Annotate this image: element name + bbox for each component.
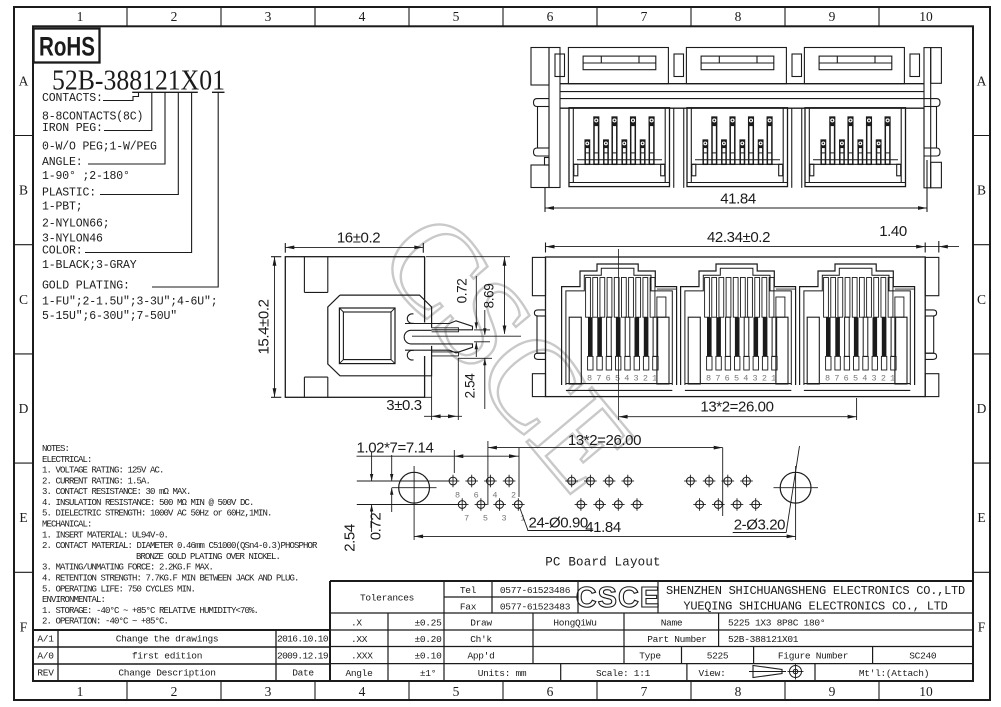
svg-text:2016.10.10: 2016.10.10 — [277, 634, 329, 645]
svg-text:6: 6 — [547, 9, 554, 24]
svg-text:2: 2 — [643, 374, 648, 384]
svg-text:RoHS: RoHS — [39, 32, 95, 62]
svg-text:D: D — [977, 401, 987, 416]
svg-text:A/1: A/1 — [37, 634, 54, 645]
svg-text:4: 4 — [862, 374, 867, 384]
svg-text:COLOR:: COLOR: — [42, 245, 83, 258]
svg-text:2-Ø3.20: 2-Ø3.20 — [734, 517, 785, 534]
svg-text:3. CONTACT RESISTANCE: 30 mΩ M: 3. CONTACT RESISTANCE: 30 mΩ MAX. — [42, 487, 191, 497]
svg-text:8.69: 8.69 — [482, 284, 497, 309]
svg-text:6: 6 — [844, 374, 849, 384]
svg-text:6: 6 — [606, 374, 611, 384]
svg-text:A/0: A/0 — [37, 651, 54, 662]
svg-text:B: B — [977, 183, 986, 198]
svg-text:Mt'l:(Attach): Mt'l:(Attach) — [859, 668, 929, 679]
svg-text:Figure Number: Figure Number — [778, 651, 848, 662]
svg-text:42.34±0.2: 42.34±0.2 — [707, 229, 770, 246]
svg-text:41.84: 41.84 — [720, 191, 756, 208]
svg-text:15.4±0.2: 15.4±0.2 — [256, 299, 273, 354]
svg-text:4. INSULATION RESISTANCE: 500: 4. INSULATION RESISTANCE: 500 MΩ MIN @ 5… — [42, 498, 254, 508]
svg-text:2-NYLON66;: 2-NYLON66; — [42, 218, 110, 231]
svg-text:.XXX: .XXX — [351, 651, 373, 662]
svg-text:±0.20: ±0.20 — [414, 634, 442, 645]
svg-text:1: 1 — [77, 684, 84, 699]
svg-text:0-W/O PEG;1-W/PEG: 0-W/O PEG;1-W/PEG — [42, 141, 157, 154]
svg-text:B: B — [19, 183, 28, 198]
svg-text:5. DIELECTRIC STRENGTH: 1000V: 5. DIELECTRIC STRENGTH: 1000V AC 50Hz or… — [42, 509, 272, 519]
svg-text:9: 9 — [829, 9, 836, 24]
svg-text:7: 7 — [715, 374, 720, 384]
svg-text:D: D — [19, 401, 29, 416]
svg-text:C: C — [19, 292, 28, 307]
svg-text:Angle: Angle — [345, 668, 373, 679]
svg-text:2.54: 2.54 — [342, 524, 359, 552]
svg-text:MECHANICAL:: MECHANICAL: — [42, 520, 92, 530]
svg-text:2: 2 — [511, 491, 516, 501]
svg-text:Change Description: Change Description — [118, 668, 215, 679]
svg-text:5. OPERATING LIFE: 750 CYCLES: 5. OPERATING LIFE: 750 CYCLES MIN. — [42, 585, 195, 595]
svg-text:3±0.3: 3±0.3 — [386, 397, 421, 414]
svg-text:first edition: first edition — [132, 651, 202, 662]
svg-text:CONTACTS:: CONTACTS: — [42, 92, 103, 105]
svg-text:1: 1 — [771, 374, 776, 384]
svg-text:5: 5 — [453, 9, 460, 24]
svg-text:6: 6 — [725, 374, 730, 384]
svg-text:16±0.2: 16±0.2 — [337, 230, 380, 247]
svg-text:Ch'k: Ch'k — [470, 634, 492, 645]
svg-text:7: 7 — [641, 684, 648, 699]
svg-text:2: 2 — [171, 9, 178, 24]
svg-text:8: 8 — [455, 491, 460, 501]
svg-text:Units: mm: Units: mm — [478, 668, 527, 679]
svg-text:7: 7 — [834, 374, 839, 384]
svg-text:8: 8 — [735, 684, 742, 699]
svg-text:4: 4 — [624, 374, 629, 384]
svg-text:5225: 5225 — [707, 651, 729, 662]
svg-text:2.54: 2.54 — [463, 373, 478, 399]
svg-text:1. INSERT MATERIAL: UL94V-0.: 1. INSERT MATERIAL: UL94V-0. — [42, 531, 168, 541]
svg-text:Change the drawings: Change the drawings — [116, 634, 219, 645]
svg-text:E: E — [19, 510, 27, 525]
svg-text:1-BLACK;3-GRAY: 1-BLACK;3-GRAY — [42, 259, 137, 272]
svg-text:8: 8 — [735, 9, 742, 24]
svg-text:52B-388121X01: 52B-388121X01 — [728, 634, 799, 645]
svg-text:2: 2 — [881, 374, 886, 384]
svg-text:±1°: ±1° — [420, 668, 436, 679]
svg-text:3: 3 — [872, 374, 877, 384]
svg-text:0.72: 0.72 — [368, 513, 385, 541]
svg-text:SC240: SC240 — [909, 651, 937, 662]
svg-text:NOTES:: NOTES: — [42, 444, 69, 454]
svg-text:.XX: .XX — [351, 634, 368, 645]
svg-text:1: 1 — [652, 374, 657, 384]
svg-text:4: 4 — [492, 491, 497, 501]
svg-text:BRONZE GOLD PLATING OVER NICKE: BRONZE GOLD PLATING OVER NICKEL. — [136, 552, 280, 562]
svg-text:View:: View: — [698, 668, 725, 679]
svg-text:2. CONTACT MATERIAL: DIAMETER: 2. CONTACT MATERIAL: DIAMETER 0.46mm C51… — [42, 541, 318, 551]
svg-text:3: 3 — [753, 374, 758, 384]
svg-text:1: 1 — [890, 374, 895, 384]
svg-text:2. CURRENT RATING: 1.5A.: 2. CURRENT RATING: 1.5A. — [42, 477, 150, 487]
svg-text:Scale: 1:1: Scale: 1:1 — [596, 668, 651, 679]
svg-text:GOLD PLATING:: GOLD PLATING: — [42, 280, 130, 293]
svg-text:0577-61523486: 0577-61523486 — [500, 585, 571, 596]
svg-text:ENVIRONMENTAL:: ENVIRONMENTAL: — [42, 595, 105, 605]
svg-text:1-FU″;2-1.5U″;3-3U″;4-6U″;: 1-FU″;2-1.5U″;3-3U″;4-6U″; — [42, 296, 218, 309]
svg-text:A: A — [19, 73, 29, 88]
svg-text:Part Number: Part Number — [647, 634, 706, 645]
svg-text:13*2=26.00: 13*2=26.00 — [700, 399, 773, 416]
svg-text:5: 5 — [615, 374, 620, 384]
svg-text:F: F — [20, 619, 28, 634]
svg-text:A: A — [977, 73, 987, 88]
svg-text:41.84: 41.84 — [585, 519, 621, 536]
svg-text:0577-61523483: 0577-61523483 — [500, 602, 571, 613]
svg-text:3. MATING/UNMATING FORCE: 2.2K: 3. MATING/UNMATING FORCE: 2.2KG.F MAX. — [42, 563, 213, 573]
svg-text:HongQiWu: HongQiWu — [553, 618, 596, 629]
svg-text:3: 3 — [502, 514, 507, 524]
svg-text:Tel: Tel — [460, 585, 477, 596]
svg-text:0.72: 0.72 — [455, 279, 470, 304]
svg-text:Date: Date — [292, 668, 314, 679]
svg-text:3: 3 — [265, 9, 272, 24]
svg-text:Name: Name — [661, 618, 683, 629]
svg-text:E: E — [977, 510, 985, 525]
svg-text:6: 6 — [474, 491, 479, 501]
svg-text:5: 5 — [483, 514, 488, 524]
svg-text:ANGLE:: ANGLE: — [42, 156, 83, 169]
svg-text:4. RETENTION STRENGTH: 7.7KG.F: 4. RETENTION STRENGTH: 7.7KG.F MIN BETWE… — [42, 574, 299, 584]
svg-text:Type: Type — [639, 651, 661, 662]
svg-text:4: 4 — [359, 9, 366, 24]
svg-text:5-15U″;6-30U″;7-50U″: 5-15U″;6-30U″;7-50U″ — [42, 310, 177, 323]
svg-text:SHENZHEN SHICHUANGSHENG ELECTR: SHENZHEN SHICHUANGSHENG ELECTRONICS CO.,… — [666, 584, 965, 598]
svg-text:IRON PEG:: IRON PEG: — [42, 122, 103, 135]
svg-text:CSCE: CSCE — [576, 582, 661, 614]
svg-text:24-Ø0.90: 24-Ø0.90 — [529, 515, 588, 532]
svg-text:App'd: App'd — [467, 651, 494, 662]
svg-text:1. STORAGE: -40°C ~ +85°C RELA: 1. STORAGE: -40°C ~ +85°C RELATIVE HUMID… — [42, 606, 258, 616]
svg-text:Draw: Draw — [470, 618, 492, 629]
svg-text:9: 9 — [829, 684, 836, 699]
svg-text:2: 2 — [762, 374, 767, 384]
svg-text:7: 7 — [464, 514, 469, 524]
svg-text:C: C — [977, 292, 986, 307]
svg-text:3: 3 — [265, 684, 272, 699]
svg-text:1.02*7=7.14: 1.02*7=7.14 — [357, 440, 434, 457]
svg-text:5: 5 — [734, 374, 739, 384]
svg-text:2. OPERATION: -40°C ~ +85°C.: 2. OPERATION: -40°C ~ +85°C. — [42, 617, 168, 627]
svg-text:8: 8 — [706, 374, 711, 384]
svg-text:8: 8 — [587, 374, 592, 384]
svg-text:Tolerances: Tolerances — [360, 593, 414, 604]
svg-text:.X: .X — [351, 618, 362, 629]
svg-text:10: 10 — [919, 684, 933, 699]
svg-text:7: 7 — [641, 9, 648, 24]
svg-text:YUEQING SHICHUANG ELECTRONICS: YUEQING SHICHUANG ELECTRONICS CO., LTD — [683, 600, 947, 614]
svg-text:8: 8 — [825, 374, 830, 384]
svg-text:13*2=26.00: 13*2=26.00 — [568, 432, 641, 449]
svg-text:±0.25: ±0.25 — [414, 618, 442, 629]
svg-text:5: 5 — [453, 684, 460, 699]
svg-text:5225 1X3 8P8C 180°: 5225 1X3 8P8C 180° — [728, 618, 825, 629]
svg-text:ELECTRICAL:: ELECTRICAL: — [42, 455, 92, 465]
svg-text:Fax: Fax — [460, 602, 477, 613]
svg-text:2009.12.19: 2009.12.19 — [277, 651, 329, 662]
svg-text:1.40: 1.40 — [879, 223, 907, 240]
svg-text:4: 4 — [743, 374, 748, 384]
svg-text:1-PBT;: 1-PBT; — [42, 201, 83, 214]
svg-text:±0.10: ±0.10 — [414, 651, 442, 662]
svg-text:3: 3 — [634, 374, 639, 384]
svg-text:4: 4 — [359, 684, 366, 699]
svg-text:PLASTIC:: PLASTIC: — [42, 187, 96, 200]
svg-text:5: 5 — [853, 374, 858, 384]
svg-text:10: 10 — [919, 9, 933, 24]
svg-text:1. VOLTAGE RATING: 125V AC.: 1. VOLTAGE RATING: 125V AC. — [42, 466, 164, 476]
svg-text:PC Board Layout: PC Board Layout — [545, 556, 661, 570]
svg-text:1: 1 — [77, 9, 84, 24]
svg-text:1-90° ;2-180°: 1-90° ;2-180° — [42, 170, 130, 183]
svg-text:6: 6 — [547, 684, 554, 699]
svg-text:REV: REV — [37, 668, 54, 679]
svg-text:2: 2 — [171, 684, 178, 699]
svg-text:7: 7 — [596, 374, 601, 384]
svg-text:F: F — [978, 619, 986, 634]
